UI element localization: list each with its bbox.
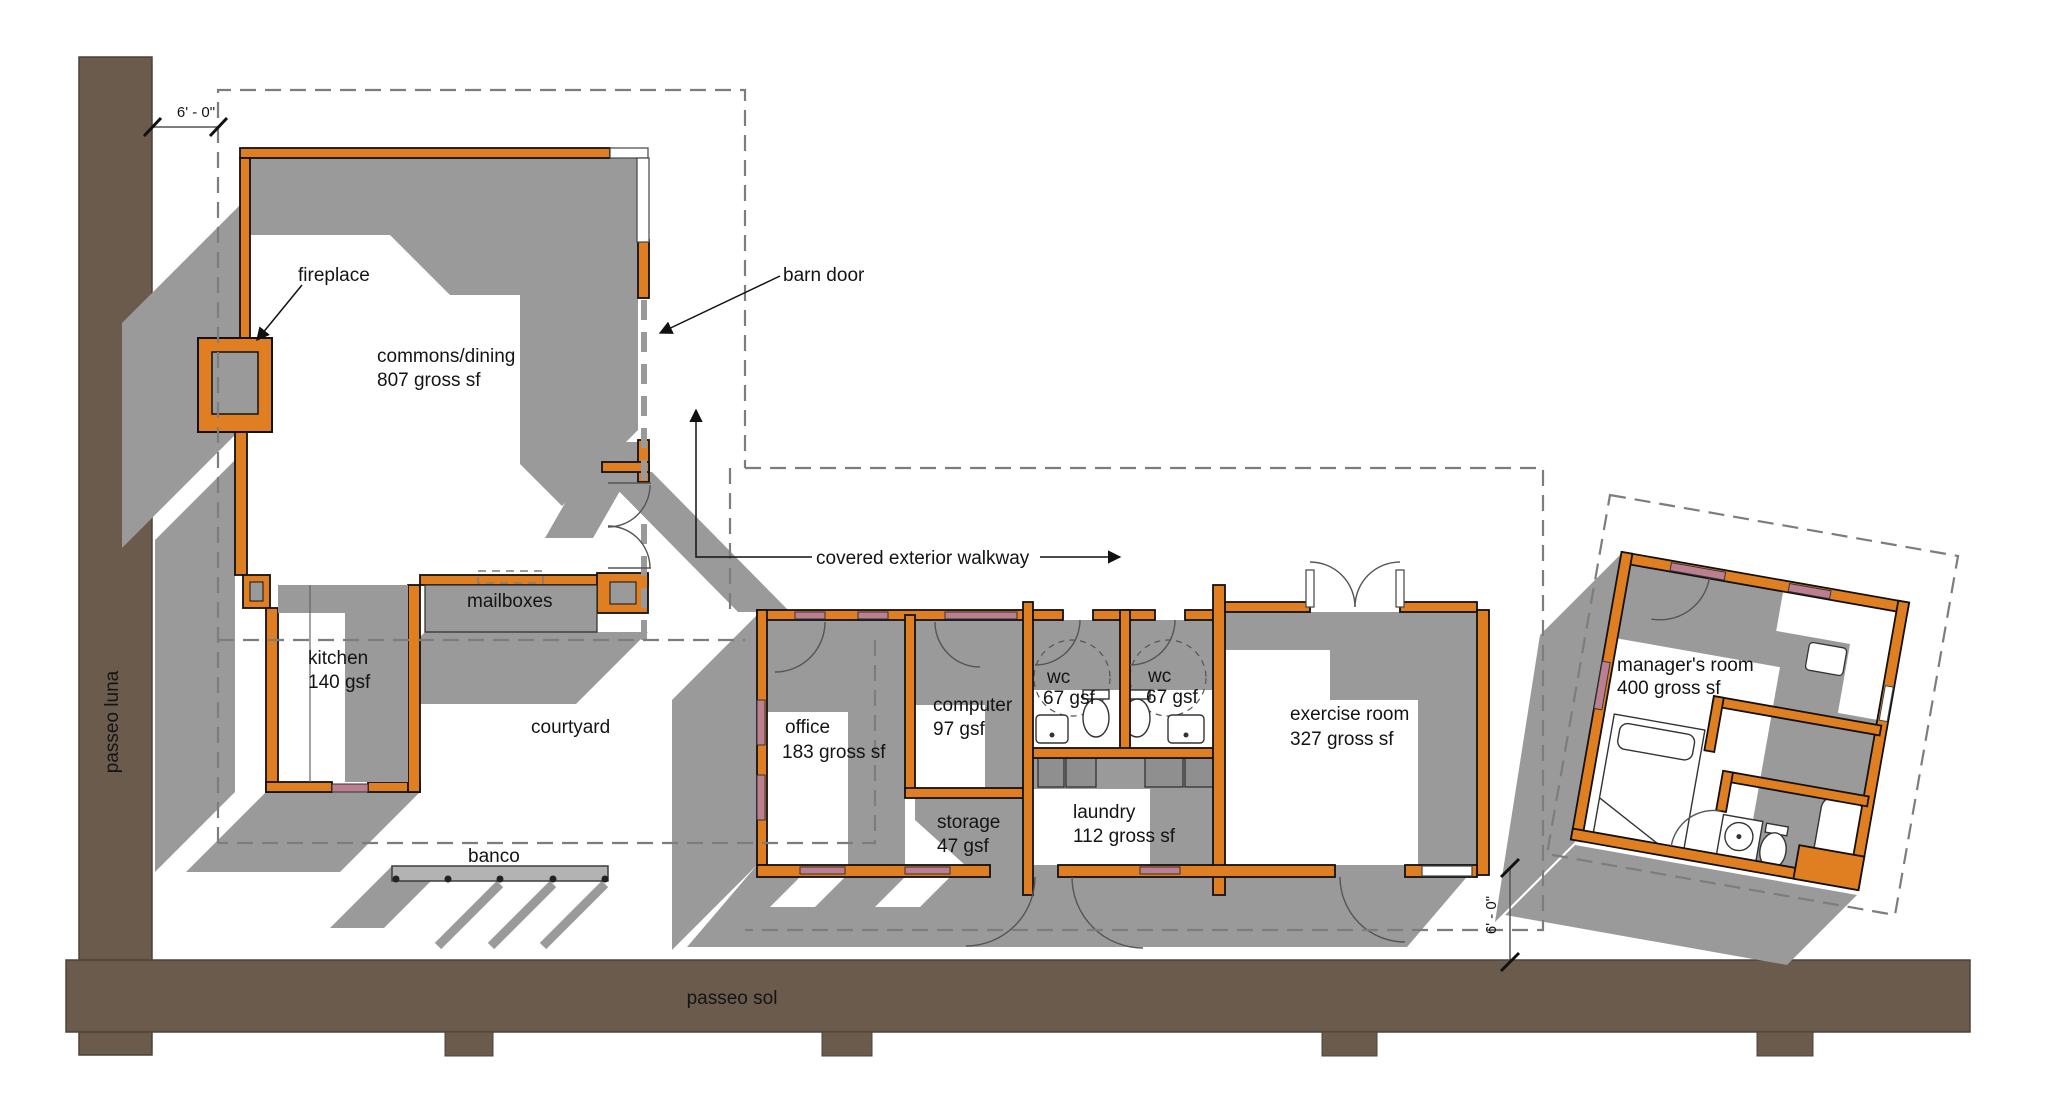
- computer-name: computer: [933, 695, 1013, 716]
- computer-area: 97 gsf: [933, 719, 985, 740]
- dim-right-label: 6' - 0": [1483, 896, 1500, 934]
- laundry-name: laundry: [1073, 802, 1136, 823]
- mailboxes-label: mailboxes: [467, 591, 553, 612]
- wc1-area: 67 gsf: [1043, 688, 1095, 709]
- wc1-name: wc: [1046, 667, 1070, 688]
- wc2-area: 67 gsf: [1146, 687, 1198, 708]
- storage-area: 47 gsf: [937, 836, 989, 857]
- banco-label: banco: [468, 846, 520, 867]
- wc2-name: wc: [1147, 666, 1171, 687]
- exercise-name: exercise room: [1290, 704, 1409, 725]
- floor-plan-sheet: 6' - 0" 6' - 0" fireplace barn door comm…: [0, 0, 2048, 1116]
- kitchen-window: [332, 784, 368, 792]
- floor-plan-drawing: 6' - 0" 6' - 0" fireplace barn door comm…: [0, 0, 2048, 1116]
- managers-building: [1571, 552, 1909, 890]
- office-name: office: [785, 717, 830, 738]
- dimension-top-left: 6' - 0": [144, 104, 227, 136]
- barn-door-label: barn door: [783, 265, 865, 286]
- passeo-luna-label: passeo luna: [102, 670, 123, 773]
- laundry-area: 112 gross sf: [1073, 826, 1176, 847]
- managers-area: 400 gross sf: [1617, 678, 1721, 699]
- passeo-sol-road: [66, 960, 1970, 1032]
- curb-tabs: [445, 1032, 1813, 1056]
- courtyard-label: courtyard: [531, 717, 610, 738]
- office-area: 183 gross sf: [782, 742, 886, 763]
- storage-name: storage: [937, 812, 1000, 833]
- dim-top-left-label: 6' - 0": [177, 104, 215, 121]
- passeo-luna-road: [79, 57, 152, 1055]
- kitchen-name: kitchen: [308, 648, 368, 669]
- kitchen-area: 140 gsf: [308, 672, 371, 693]
- banco-bench: [330, 866, 609, 946]
- commons-area: 807 gross sf: [377, 370, 481, 391]
- fireplace-label: fireplace: [298, 265, 370, 286]
- commons-name: commons/dining: [377, 346, 515, 367]
- exercise-area: 327 gross sf: [1290, 729, 1394, 750]
- bed: [1593, 714, 1704, 848]
- managers-name: manager's room: [1617, 655, 1754, 676]
- passeo-sol-label: passeo sol: [687, 988, 778, 1009]
- walkway-label: covered exterior walkway: [816, 548, 1030, 569]
